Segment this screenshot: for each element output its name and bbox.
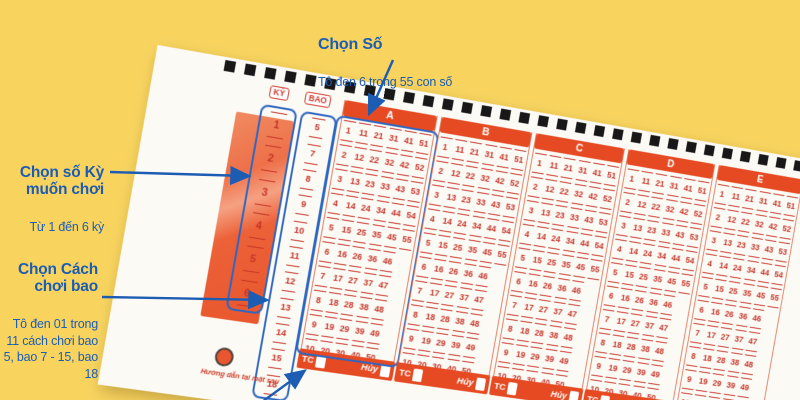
number-cell[interactable]: 24 [358, 198, 374, 220]
number-cell[interactable]: 12 [724, 209, 739, 230]
number-cell[interactable]: 19 [696, 371, 711, 392]
number-cell[interactable]: 6 [604, 286, 619, 307]
number-cell[interactable]: 42 [766, 216, 780, 237]
timing-mark [304, 74, 316, 87]
number-cell[interactable]: 22 [738, 212, 752, 233]
number-cell[interactable]: 46 [660, 294, 675, 315]
number-cell[interactable]: 7 [600, 309, 615, 330]
number-cell[interactable]: 7 [315, 265, 331, 287]
number-cell[interactable]: 26 [632, 290, 647, 311]
huy-label: Hủy [550, 389, 568, 400]
number-cell[interactable]: 25 [636, 267, 651, 288]
ky-number-cell[interactable]: 4 [248, 212, 269, 240]
number-cell[interactable]: 5 [323, 217, 339, 239]
number-cell[interactable]: 43 [581, 210, 596, 232]
number-cell[interactable]: 34 [563, 231, 578, 253]
number-cell[interactable]: 31 [386, 128, 402, 150]
timing-mark [284, 71, 296, 84]
number-cell[interactable]: 51 [695, 180, 710, 201]
number-cell[interactable]: 41 [681, 178, 696, 199]
number-cell[interactable]: 21 [742, 189, 756, 210]
huy-checkbox[interactable] [568, 390, 579, 400]
number-cell[interactable]: 18 [517, 321, 532, 343]
number-cell[interactable]: 2 [711, 207, 726, 228]
number-cell[interactable]: 43 [392, 178, 408, 200]
number-cell[interactable]: 34 [744, 260, 758, 281]
number-cell[interactable]: 52 [412, 157, 428, 179]
page: KỲ 123456 BAO 578910111213141518 A123456… [0, 0, 800, 400]
number-cell[interactable]: 55 [767, 287, 781, 308]
bao-number-cell[interactable]: 13 [277, 297, 294, 318]
number-cell[interactable]: 11 [546, 155, 561, 177]
number-cell[interactable]: 16 [334, 243, 350, 265]
number-cell[interactable]: 28 [532, 323, 547, 345]
number-cell[interactable]: 33 [748, 237, 762, 258]
number-cell[interactable]: 2 [528, 176, 543, 198]
number-cell[interactable]: 49 [367, 323, 383, 345]
number-cell[interactable]: 13 [347, 171, 363, 193]
number-cell[interactable]: 5 [515, 247, 530, 269]
number-cell[interactable]: 4 [612, 239, 627, 260]
number-cell[interactable]: 45 [384, 226, 400, 248]
number-cell[interactable]: 8 [310, 290, 326, 312]
tc-label: TC [586, 394, 599, 400]
annotation-title: Chọn Cách chơi bao [0, 261, 98, 295]
tc-checkbox[interactable] [599, 395, 610, 400]
number-cell[interactable]: 48 [741, 354, 755, 375]
number-cell[interactable]: 43 [673, 225, 688, 246]
number-cell[interactable]: 41 [401, 130, 417, 152]
number-cell[interactable]: 53 [503, 197, 518, 219]
number-cell[interactable]: 26 [349, 246, 365, 268]
number-cell[interactable]: 16 [526, 273, 541, 295]
number-cell[interactable]: 13 [444, 187, 459, 209]
tc-label: TC [398, 367, 412, 379]
annotation-chon-bao: Chọn Cách chơi bao Tô đen 01 trong 11 cá… [0, 243, 98, 400]
number-cell[interactable]: 46 [750, 308, 764, 329]
number-cell[interactable]: 55 [678, 273, 693, 294]
number-cell[interactable]: 18 [326, 292, 342, 314]
bao-number-cell[interactable]: 10 [291, 220, 308, 242]
number-cell[interactable]: 17 [614, 311, 629, 332]
number-cell[interactable]: 28 [437, 309, 452, 331]
number-cell[interactable]: 29 [710, 373, 725, 394]
number-cell[interactable]: 37 [456, 287, 471, 309]
ky-column-header: KỲ [269, 85, 290, 101]
number-cell[interactable]: 34 [373, 200, 389, 222]
timing-mark [518, 112, 530, 124]
number-cell[interactable]: 52 [779, 219, 793, 240]
number-cell[interactable]: 32 [477, 168, 492, 190]
number-cell[interactable]: 24 [548, 228, 563, 250]
number-cell[interactable]: 36 [365, 248, 381, 270]
timing-mark [740, 151, 751, 163]
number-cell[interactable]: 48 [371, 299, 387, 321]
number-cell[interactable]: 23 [458, 189, 473, 211]
number-cell[interactable]: 43 [488, 194, 503, 216]
number-cell[interactable]: 11 [729, 186, 744, 207]
timing-mark [612, 128, 624, 140]
number-cell[interactable]: 54 [498, 220, 513, 242]
number-cell[interactable]: 8 [686, 346, 701, 367]
number-cell[interactable]: 1 [437, 136, 452, 158]
number-cell[interactable]: 55 [399, 229, 415, 251]
bao-number-cell[interactable]: 14 [273, 323, 290, 344]
number-cell[interactable]: 48 [561, 327, 576, 348]
number-cell[interactable]: 22 [463, 165, 478, 187]
number-cell[interactable]: 28 [341, 294, 357, 316]
number-cell[interactable]: 5 [698, 276, 713, 297]
number-cell[interactable]: 26 [540, 276, 555, 298]
huy-checkbox[interactable] [380, 363, 391, 377]
number-cell[interactable]: 35 [559, 254, 574, 276]
number-cell[interactable]: 44 [668, 248, 683, 269]
tc-checkbox[interactable] [506, 381, 517, 395]
number-cell[interactable]: 9 [306, 314, 322, 336]
number-cell[interactable]: 27 [628, 313, 643, 334]
number-cell[interactable]: 25 [544, 252, 559, 274]
number-cell[interactable]: 49 [463, 337, 478, 359]
number-cell[interactable]: 35 [369, 224, 385, 246]
number-cell[interactable]: 8 [503, 318, 518, 340]
number-cell[interactable]: 12 [448, 163, 463, 185]
number-cell[interactable]: 24 [730, 258, 745, 279]
timing-mark [224, 60, 237, 73]
number-cell[interactable]: 51 [416, 133, 432, 155]
number-cell[interactable]: 9 [591, 356, 606, 377]
number-cell[interactable]: 54 [403, 205, 419, 227]
number-cell[interactable]: 27 [442, 285, 457, 307]
number-cell[interactable]: 1 [624, 168, 639, 190]
timing-mark [631, 132, 642, 144]
number-cell[interactable]: 17 [427, 282, 442, 304]
number-cell[interactable]: 25 [354, 222, 370, 244]
number-cell[interactable]: 38 [452, 311, 467, 333]
number-cell[interactable]: 46 [475, 265, 490, 287]
bao-number-cell[interactable]: 15 [268, 349, 285, 370]
number-cell[interactable]: 4 [328, 193, 344, 215]
timing-mark [722, 148, 733, 160]
timing-mark [758, 154, 769, 166]
number-cell[interactable]: 37 [732, 329, 746, 350]
number-cell[interactable]: 27 [536, 299, 551, 321]
number-cell[interactable]: 30 [706, 396, 721, 400]
number-cell[interactable]: 17 [521, 297, 536, 319]
number-cell[interactable]: 11 [356, 122, 372, 144]
number-cell[interactable]: 44 [388, 202, 404, 224]
number-cell[interactable]: 28 [624, 337, 639, 358]
number-cell[interactable]: 15 [530, 250, 545, 272]
number-cell[interactable]: 41 [590, 162, 605, 184]
number-cell[interactable]: 45 [664, 271, 679, 292]
number-cell[interactable]: 21 [561, 158, 576, 180]
number-cell[interactable]: 18 [423, 306, 438, 328]
number-cell[interactable]: 47 [471, 289, 486, 311]
number-cell[interactable]: 11 [452, 139, 467, 161]
number-cell[interactable]: 49 [737, 377, 751, 398]
bao-number-cell[interactable]: 11 [286, 246, 303, 268]
number-cell[interactable]: 49 [556, 351, 571, 372]
number-cell[interactable]: 6 [319, 241, 335, 263]
timing-mark [244, 64, 257, 77]
number-cell[interactable]: 52 [507, 173, 522, 195]
number-cell[interactable]: 27 [718, 327, 733, 348]
number-cell[interactable]: 16 [618, 288, 633, 309]
number-cell[interactable]: 3 [429, 184, 445, 206]
number-cell[interactable]: 32 [571, 184, 586, 206]
number-cell[interactable]: 39 [448, 335, 463, 357]
number-cell[interactable]: 39 [634, 362, 649, 383]
number-cell[interactable]: 16 [431, 259, 446, 281]
number-cell[interactable]: 1 [532, 153, 547, 175]
number-cell[interactable]: 12 [634, 194, 649, 216]
number-cell[interactable]: 17 [704, 325, 719, 346]
number-cell[interactable]: 54 [682, 250, 697, 271]
number-cell[interactable]: 14 [343, 195, 359, 217]
number-cell[interactable]: 36 [554, 278, 569, 300]
number-cell[interactable]: 4 [519, 224, 534, 246]
number-cell[interactable]: 44 [758, 262, 772, 283]
number-cell[interactable]: 7 [412, 280, 428, 302]
bao-number-cell[interactable]: 5 [309, 118, 326, 140]
number-cell[interactable]: 4 [702, 253, 717, 274]
number-cell[interactable]: 29 [620, 360, 635, 381]
number-cell[interactable]: 1 [340, 120, 356, 142]
number-cell[interactable]: 6 [511, 271, 526, 293]
number-cell[interactable]: 47 [746, 331, 760, 352]
number-cell[interactable]: 34 [654, 246, 669, 267]
number-cell[interactable]: 22 [367, 149, 383, 171]
number-cell[interactable]: 42 [677, 201, 692, 222]
number-cell[interactable]: 36 [736, 306, 750, 327]
number-cell[interactable]: 54 [771, 265, 785, 286]
number-cell[interactable]: 5 [608, 262, 623, 283]
number-cell[interactable]: 42 [397, 154, 413, 176]
number-cell[interactable]: 25 [726, 281, 741, 302]
number-cell[interactable]: 2 [336, 144, 352, 166]
number-cell[interactable]: 1 [715, 184, 730, 205]
number-cell[interactable]: 12 [542, 179, 557, 201]
number-cell[interactable]: 52 [691, 204, 706, 225]
number-cell[interactable]: 31 [756, 191, 770, 212]
number-cell[interactable]: 37 [550, 301, 565, 323]
number-cell[interactable]: 53 [687, 227, 702, 248]
number-cell[interactable]: 47 [375, 275, 391, 297]
timing-mark [480, 105, 492, 117]
bao-number-cell[interactable]: 9 [295, 195, 312, 217]
number-cell[interactable]: 19 [418, 330, 433, 352]
number-cell[interactable]: 35 [465, 239, 480, 261]
number-cell[interactable]: 15 [712, 279, 727, 300]
number-cell[interactable]: 39 [352, 321, 368, 343]
number-cell[interactable]: 15 [622, 264, 637, 285]
number-cell[interactable]: 2 [433, 160, 448, 182]
annotation-chon-so: Chọn Số Tô đen 6 trong 55 con số [318, 18, 452, 109]
number-cell[interactable]: 39 [724, 375, 738, 396]
number-cell[interactable]: 38 [546, 325, 561, 347]
number-cell[interactable]: 3 [332, 168, 348, 190]
number-cell[interactable]: 55 [494, 244, 509, 266]
number-cell[interactable]: 7 [690, 323, 705, 344]
number-cell[interactable]: 3 [616, 215, 631, 237]
number-cell[interactable]: 31 [482, 144, 497, 166]
number-cell[interactable]: 35 [650, 269, 665, 290]
number-cell[interactable]: 51 [604, 165, 619, 187]
number-cell[interactable]: 10 [678, 392, 693, 400]
number-cell[interactable]: 31 [575, 160, 590, 182]
tc-checkbox[interactable] [315, 354, 327, 368]
number-cell[interactable]: 14 [626, 241, 641, 262]
number-cell[interactable]: 34 [469, 216, 484, 238]
number-cell[interactable]: 11 [638, 171, 653, 193]
number-cell[interactable]: 22 [649, 197, 664, 218]
number-cell[interactable]: 29 [337, 318, 353, 340]
number-cell[interactable]: 44 [484, 218, 499, 240]
number-cell[interactable]: 32 [382, 152, 398, 174]
number-cell[interactable]: 38 [356, 296, 372, 318]
number-cell[interactable]: 47 [565, 304, 580, 325]
number-cell[interactable]: 12 [351, 147, 367, 169]
number-cell[interactable]: 49 [648, 364, 663, 385]
huy-checkbox[interactable] [475, 377, 486, 391]
number-cell[interactable]: 33 [473, 192, 488, 214]
number-cell[interactable]: 53 [596, 212, 611, 234]
number-cell[interactable]: 47 [656, 318, 671, 339]
number-cell[interactable]: 33 [377, 176, 393, 198]
number-cell[interactable]: 20 [692, 394, 707, 400]
number-cell[interactable]: 48 [652, 341, 667, 362]
number-cell[interactable]: 25 [450, 237, 465, 259]
number-cell[interactable]: 21 [467, 141, 482, 163]
number-cell[interactable]: 39 [542, 349, 557, 370]
number-cell[interactable]: 24 [454, 213, 469, 235]
number-cell[interactable]: 46 [569, 280, 584, 302]
number-cell[interactable]: 15 [435, 235, 450, 257]
number-cell[interactable]: 37 [360, 272, 376, 294]
number-cell[interactable]: 19 [513, 344, 528, 366]
number-cell[interactable]: 52 [600, 188, 615, 210]
number-cell[interactable]: 38 [638, 339, 653, 360]
number-cell[interactable]: 51 [784, 196, 798, 217]
number-cell[interactable]: 27 [345, 270, 361, 292]
number-cell[interactable]: 41 [770, 193, 784, 214]
number-cell[interactable]: 28 [714, 350, 729, 371]
number-cell[interactable]: 9 [682, 369, 697, 390]
number-cell[interactable]: 38 [728, 352, 742, 373]
number-cell[interactable]: 17 [330, 268, 346, 290]
number-cell[interactable]: 22 [557, 181, 572, 203]
number-cell[interactable]: 32 [663, 199, 678, 220]
number-cell[interactable]: 3 [706, 230, 721, 251]
number-cell[interactable]: 26 [446, 261, 461, 283]
number-cell[interactable]: 9 [498, 342, 513, 364]
number-cell[interactable]: 29 [528, 346, 543, 368]
number-cell[interactable]: 32 [752, 214, 766, 235]
number-cell[interactable]: 13 [720, 232, 735, 253]
number-cell[interactable]: 45 [573, 257, 588, 279]
number-cell[interactable]: 18 [610, 334, 625, 355]
number-cell[interactable]: 55 [587, 259, 602, 281]
number-cell[interactable]: 23 [644, 220, 659, 241]
number-cell[interactable]: 15 [339, 219, 355, 241]
number-cell[interactable]: 19 [605, 358, 620, 379]
tc-checkbox[interactable] [412, 368, 423, 382]
number-cell[interactable]: 42 [585, 186, 600, 208]
number-cell[interactable]: 45 [754, 285, 768, 306]
ky-number-cell[interactable]: 2 [260, 145, 281, 173]
number-cell[interactable]: 26 [722, 304, 737, 325]
number-cell[interactable]: 7 [507, 295, 522, 317]
number-cell[interactable]: 44 [577, 233, 592, 255]
number-cell[interactable]: 2 [620, 192, 635, 214]
number-cell[interactable]: 19 [321, 316, 337, 338]
number-cell[interactable]: 41 [496, 147, 511, 169]
number-cell[interactable]: 9 [403, 328, 419, 350]
number-cell[interactable]: 42 [492, 170, 507, 192]
number-cell[interactable]: 13 [630, 218, 645, 239]
number-cell[interactable]: 37 [642, 315, 657, 336]
number-cell[interactable]: 3 [523, 200, 538, 222]
number-cell[interactable]: 36 [461, 263, 476, 285]
number-cell[interactable]: 45 [480, 242, 495, 264]
number-cell[interactable]: 8 [408, 304, 424, 326]
annotation-subtitle: Tô đen 6 trong 55 con số [318, 74, 452, 91]
number-cell[interactable]: 23 [734, 235, 748, 256]
number-cell[interactable]: 29 [433, 333, 448, 355]
number-cell[interactable]: 18 [700, 348, 715, 369]
number-cell[interactable]: 53 [775, 242, 789, 263]
ky-number-cell[interactable]: 3 [254, 179, 275, 207]
number-cell[interactable]: 53 [407, 181, 423, 203]
timing-mark [499, 108, 511, 120]
number-cell[interactable]: 5 [420, 232, 436, 254]
number-cell[interactable]: 8 [595, 332, 610, 353]
bao-number-cell[interactable]: 12 [282, 272, 299, 293]
number-cell[interactable]: 6 [694, 300, 709, 321]
timing-mark [537, 115, 549, 127]
number-cell[interactable]: 24 [640, 243, 655, 264]
number-cell[interactable]: 54 [592, 235, 607, 257]
bao-number-cell[interactable]: 8 [300, 169, 317, 191]
number-cell[interactable]: 51 [511, 149, 526, 171]
number-cell[interactable]: 31 [667, 176, 682, 197]
number-cell[interactable]: 35 [740, 283, 754, 304]
number-cell[interactable]: 36 [646, 292, 661, 313]
huy-label: Hủy [360, 362, 379, 375]
bao-number-cell[interactable]: 7 [304, 143, 321, 165]
number-cell[interactable]: 23 [362, 173, 378, 195]
number-cell[interactable]: 14 [534, 226, 549, 248]
ky-number-cell[interactable]: 6 [236, 279, 257, 307]
ky-number-cell[interactable]: 5 [242, 246, 263, 274]
number-cell[interactable]: 21 [371, 125, 387, 147]
number-cell[interactable]: 48 [467, 313, 482, 335]
number-cell[interactable]: 33 [659, 222, 674, 243]
number-cell[interactable]: 14 [716, 256, 731, 277]
number-cell[interactable]: 23 [553, 205, 568, 227]
number-cell[interactable]: 46 [380, 251, 396, 273]
number-cell[interactable]: 16 [708, 302, 723, 323]
number-cell[interactable]: 4 [425, 208, 441, 230]
number-cell[interactable]: 14 [439, 211, 454, 233]
huy-label: Hủy [456, 375, 474, 388]
number-cell[interactable]: 43 [762, 239, 776, 260]
number-cell[interactable]: 33 [567, 207, 582, 229]
ky-number-cell[interactable]: 1 [266, 111, 287, 139]
number-cell[interactable]: 21 [653, 173, 668, 195]
number-cell[interactable]: 13 [538, 202, 553, 224]
number-cell[interactable]: 6 [416, 256, 432, 278]
